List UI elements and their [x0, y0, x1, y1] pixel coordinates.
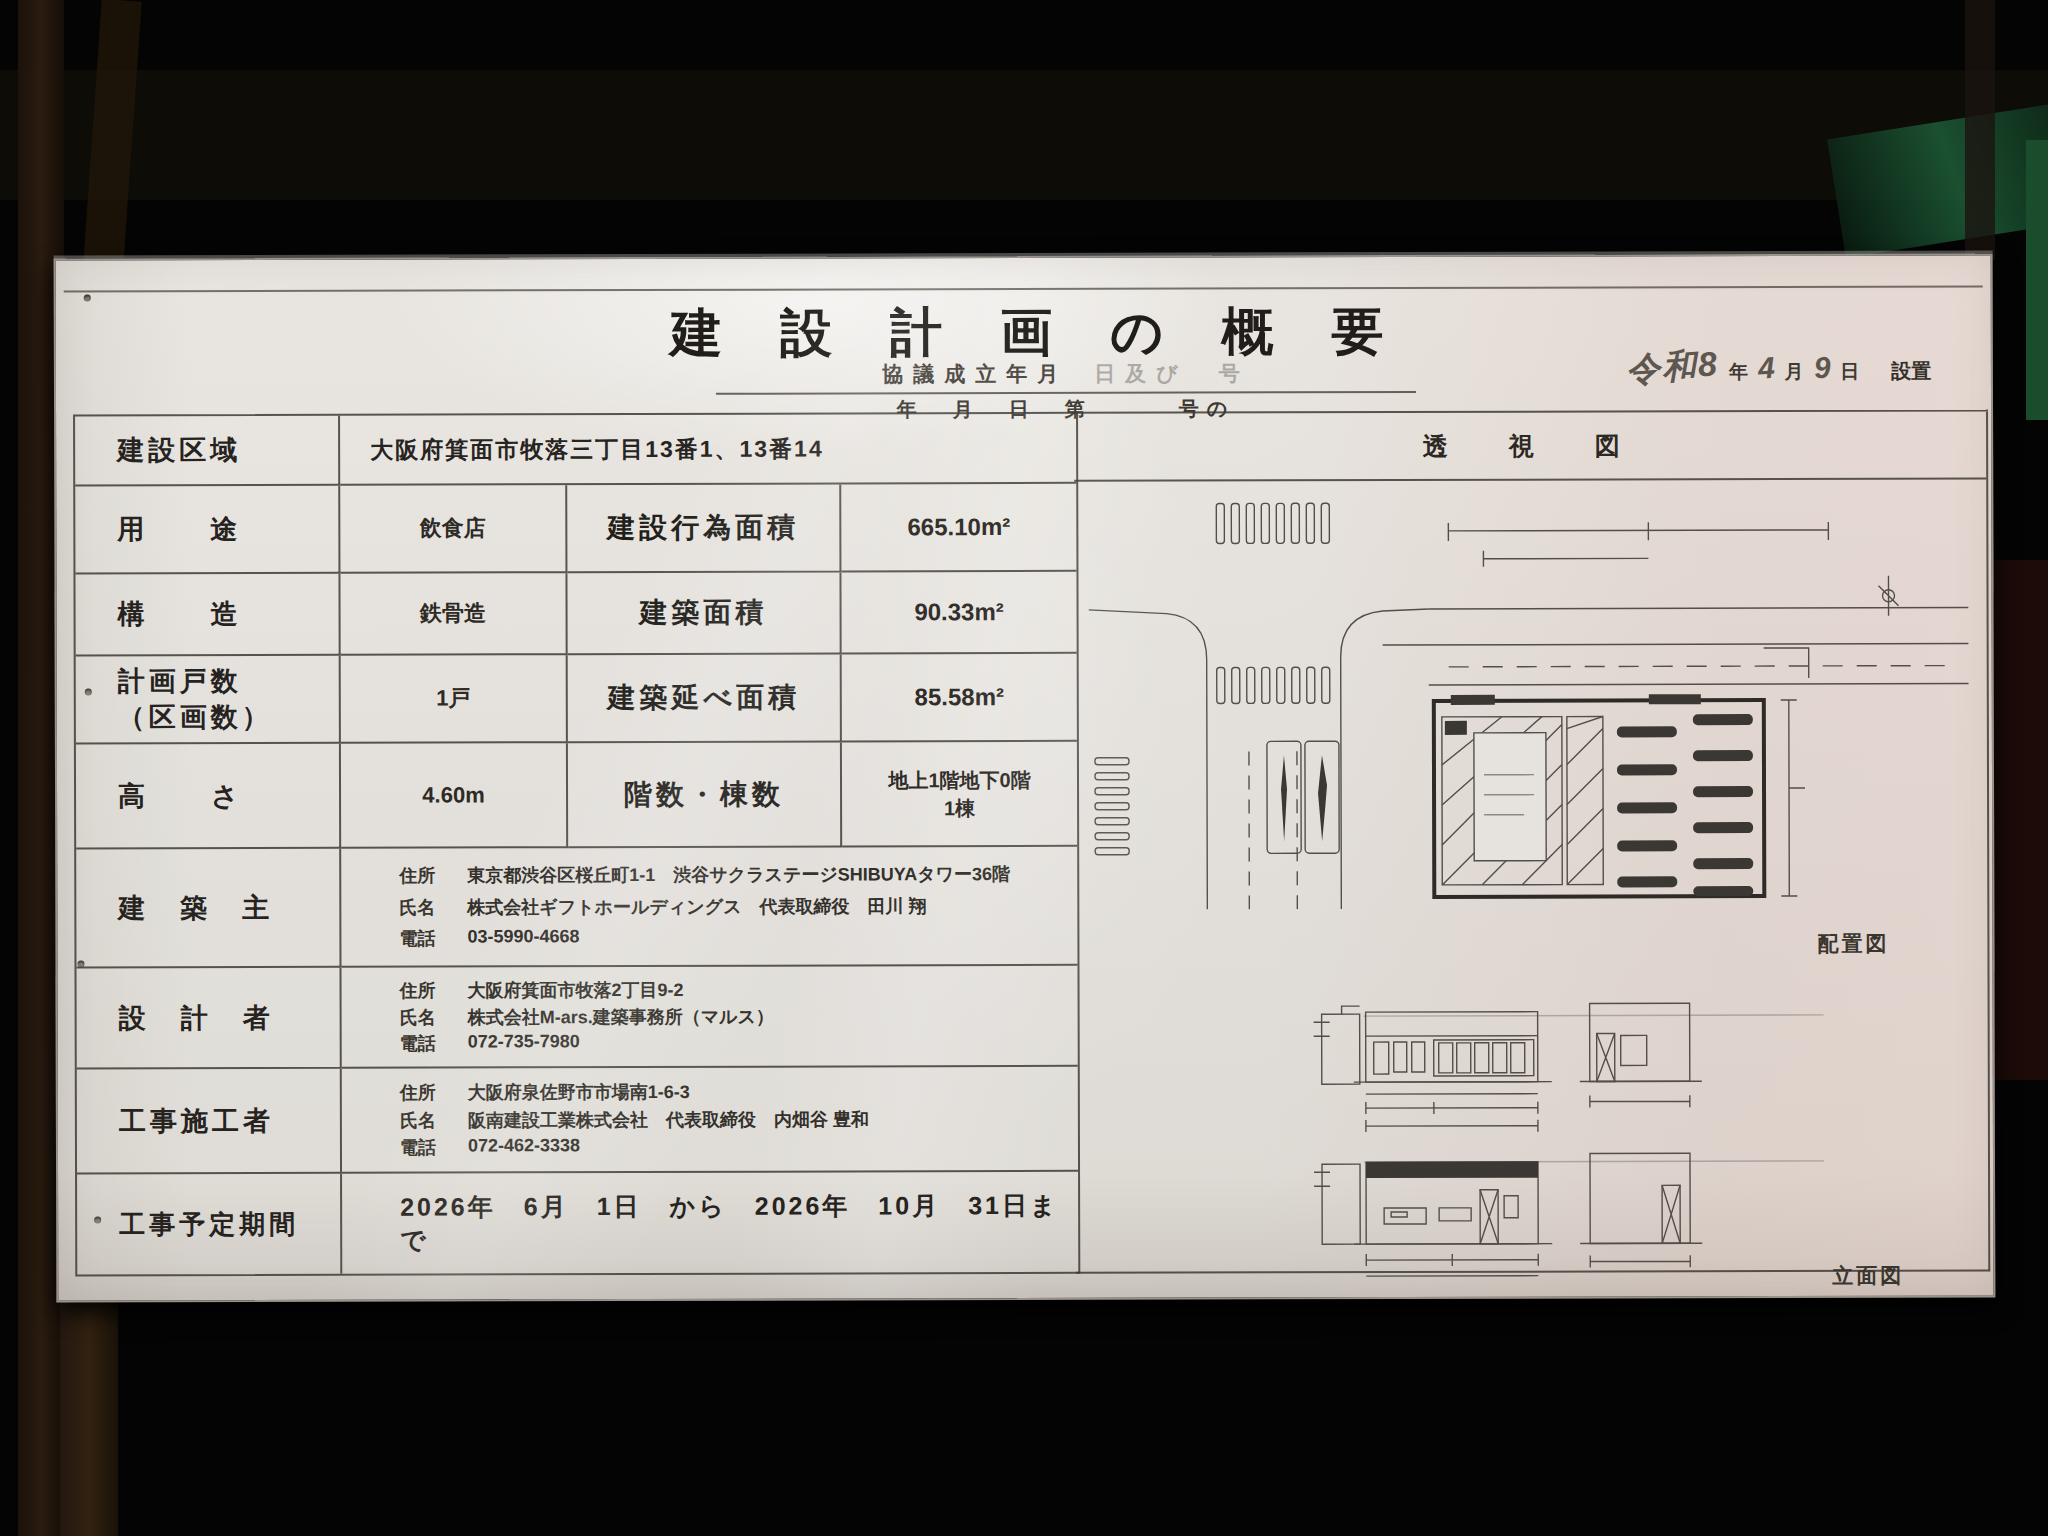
owner-label: 建 築 主 [76, 849, 341, 969]
handwritten-era-year: 令和8 [1624, 341, 1720, 394]
usage-label: 用 途 [75, 486, 340, 575]
construction-act-area-value: 665.10m² [841, 484, 1076, 573]
construction-act-area-label: 建設行為面積 [567, 484, 841, 573]
site-plan-label: 配置図 [1817, 930, 1889, 958]
construction-plan-signboard: 建設計画の概要 協議成立年月 日及び 号 年 月 日 第号の 令和8 年 4 月… [54, 253, 1996, 1302]
photo-of-construction-sign: 建設計画の概要 協議成立年月 日及び 号 年 月 日 第号の 令和8 年 4 月… [0, 0, 2048, 1536]
drawings-panel: 透 視 図 [1074, 409, 1990, 1273]
handwritten-day: 9 [1812, 350, 1831, 385]
owner-contact-block: 住所東京都渋谷区桜丘町1-1 渋谷サクラステージSHIBUYAタワー36階 氏名… [341, 847, 1077, 968]
designer-contact-block: 住所大阪府箕面市牧落2丁目9-2 氏名株式会社M-ars.建築事務所（マルス） … [341, 966, 1077, 1069]
elevation-label: 立面図 [1832, 1262, 1904, 1290]
agreement-date-line: 協議成立年月 日及び 号 [716, 359, 1416, 395]
height-label: 高 さ [76, 744, 341, 850]
structure-label: 構 造 [75, 574, 340, 657]
background-shadow-band [0, 70, 2048, 200]
installed-label: 設置 [1891, 358, 1931, 385]
sign-frame-groove [64, 285, 1983, 292]
handwritten-month: 4 [1757, 350, 1776, 385]
owner-address-line: 住所東京都渋谷区桜丘町1-1 渋谷サクラステージSHIBUYAタワー36階 [399, 862, 1077, 888]
period-label: 工事予定期間 [77, 1174, 342, 1275]
total-floor-area-value: 85.58m² [842, 654, 1077, 743]
contractor-label: 工事施工者 [77, 1069, 342, 1175]
building-area-value: 90.33m² [841, 572, 1076, 655]
owner-name-line: 氏名株式会社ギフトホールディングス 代表取締役 田川 翔 [399, 893, 1077, 919]
usage-value: 飲食店 [340, 485, 567, 574]
sign-title: 建設計画の概要 [426, 296, 1686, 369]
designer-name-line: 氏名株式会社M-ars.建築事務所（マルス） [400, 1003, 1078, 1029]
floors-value: 地上1階地下0階1棟 [842, 742, 1077, 848]
agreement-date-text: 協議成立年月 [882, 360, 1068, 388]
site-plan-drawing [1088, 488, 1969, 910]
background-green-edge [2026, 140, 2048, 420]
construction-area-label: 建設区域 [75, 416, 340, 487]
period-value: 2026年 6月 1日 から 2026年 10月 31日まで [342, 1172, 1078, 1274]
background-red-reflection [1992, 560, 2048, 1080]
height-value: 4.60m [341, 743, 568, 849]
building-area-label: 建築面積 [567, 572, 841, 655]
construction-summary-table: 建設区域 大阪府箕面市牧落三丁目13番1、13番14 用 途 飲食店 建設行為面… [73, 412, 1080, 1277]
agreement-date-faded-text: 日及び 号 [1094, 359, 1250, 387]
designer-tel-line: 電話072-735-7980 [400, 1030, 1078, 1056]
elevation-drawing [1284, 985, 1830, 1281]
total-floor-area-label: 建築延べ面積 [568, 654, 842, 743]
designer-label: 設 計 者 [76, 968, 341, 1070]
contractor-name-line: 氏名阪南建設工業株式会社 代表取締役 内畑谷 豊和 [400, 1106, 1078, 1132]
construction-area-value: 大阪府箕面市牧落三丁目13番1、13番14 [340, 414, 1076, 486]
drawing-area: 配置図 [1074, 479, 1988, 1269]
contractor-address-line: 住所大阪府泉佐野市市場南1-6-3 [400, 1079, 1078, 1105]
perspective-drawing-title: 透 視 図 [1074, 411, 1986, 481]
structure-value: 鉄骨造 [340, 573, 567, 656]
rivet-screw [84, 294, 91, 301]
contractor-tel-line: 電話072-462-3338 [400, 1134, 1078, 1160]
background-right-post [1965, 0, 1995, 260]
contractor-contact-block: 住所大阪府泉佐野市市場南1-6-3 氏名阪南建設工業株式会社 代表取締役 内畑谷… [342, 1067, 1078, 1174]
owner-tel-line: 電話03-5990-4668 [399, 925, 1077, 951]
floors-label: 階数・棟数 [568, 742, 842, 848]
planned-units-label: 計画戸数（区画数） [76, 656, 341, 745]
planned-units-value: 1戸 [341, 655, 568, 744]
wooden-scaffold-post-lower [60, 1280, 118, 1536]
designer-address-line: 住所大阪府箕面市牧落2丁目9-2 [400, 977, 1078, 1003]
installation-date: 令和8 年 4 月 9 日 設置 [1626, 343, 1986, 390]
